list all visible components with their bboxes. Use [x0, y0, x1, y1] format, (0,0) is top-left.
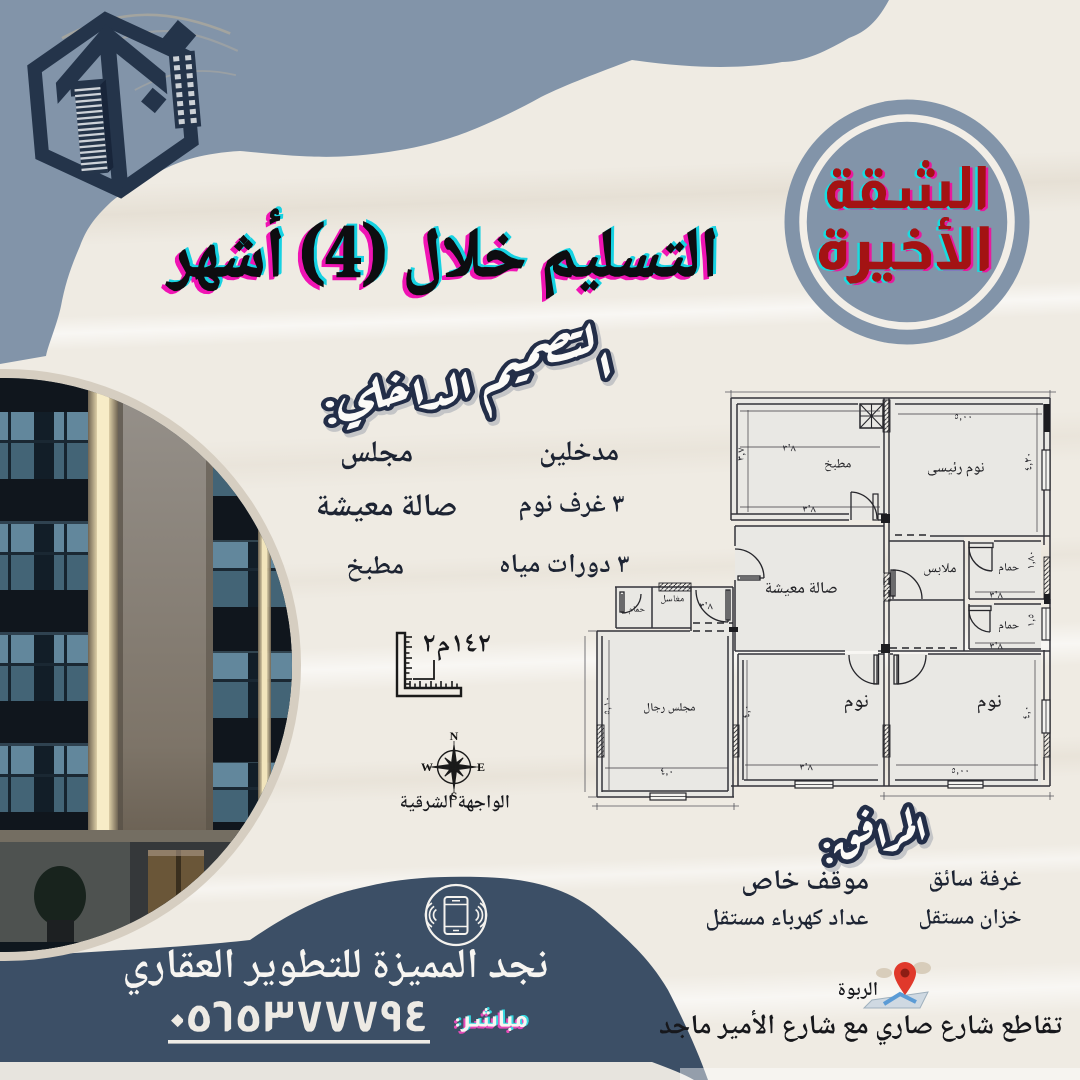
svg-text:N: N: [450, 729, 459, 743]
svg-text:W: W: [421, 760, 433, 774]
svg-text:E: E: [477, 760, 485, 774]
